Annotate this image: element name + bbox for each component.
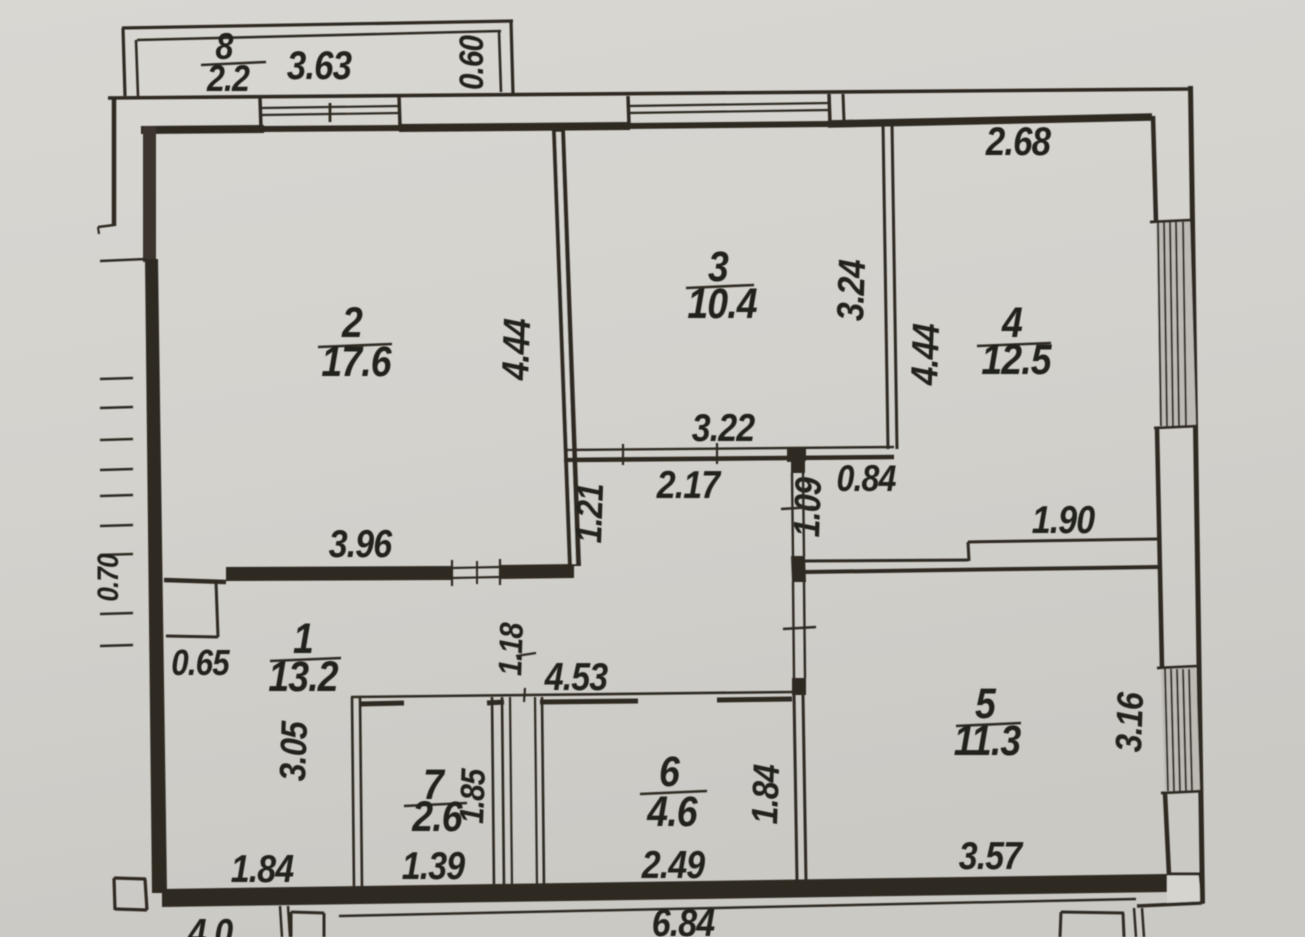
svg-text:11.3: 11.3 [954,717,1021,765]
svg-text:0.60: 0.60 [452,35,490,90]
svg-text:4.6: 4.6 [646,788,698,836]
svg-text:12.5: 12.5 [981,336,1052,384]
svg-text:2.68: 2.68 [985,119,1051,164]
svg-text:13.2: 13.2 [268,653,338,701]
svg-text:1.39: 1.39 [402,844,466,888]
svg-text:1.90: 1.90 [1032,498,1095,542]
svg-text:1.85: 1.85 [452,767,492,824]
svg-text:2.17: 2.17 [656,463,722,507]
svg-text:1.21: 1.21 [569,483,612,544]
svg-text:0.65: 0.65 [171,643,230,684]
svg-text:3.05: 3.05 [273,720,316,782]
svg-text:2.2: 2.2 [206,59,250,100]
svg-text:0.84: 0.84 [836,459,896,500]
svg-text:3.63: 3.63 [287,43,352,88]
svg-text:4.44: 4.44 [494,317,539,381]
svg-text:17.6: 17.6 [321,338,392,386]
svg-text:3.16: 3.16 [1109,691,1152,753]
svg-text:3.96: 3.96 [329,522,393,566]
svg-text:3.24: 3.24 [829,258,874,321]
svg-text:3.22: 3.22 [692,406,755,450]
svg-text:3.57: 3.57 [959,834,1024,878]
svg-text:1.84: 1.84 [231,847,294,891]
svg-text:10.4: 10.4 [687,280,757,328]
svg-text:4,0: 4,0 [187,911,233,937]
svg-text:4.53: 4.53 [544,655,608,699]
svg-text:2.49: 2.49 [641,843,706,887]
svg-text:1.84: 1.84 [745,764,788,825]
svg-text:4.44: 4.44 [903,322,948,386]
svg-text:1.18: 1.18 [491,621,530,676]
svg-text:6.84: 6.84 [652,901,715,937]
svg-text:0.70: 0.70 [91,553,124,602]
